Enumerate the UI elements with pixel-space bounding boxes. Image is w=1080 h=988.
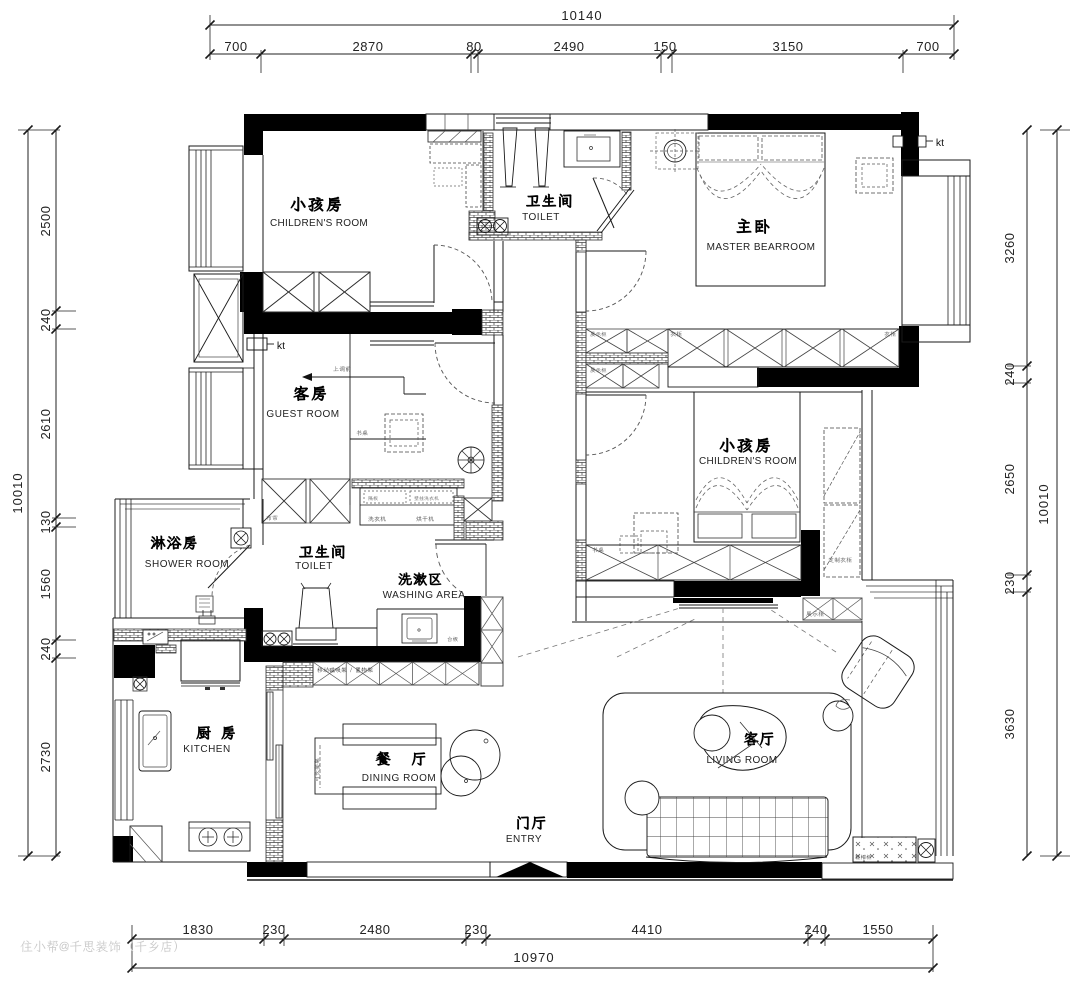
svg-text:kt: kt	[277, 340, 285, 352]
svg-text:KITCHEN: KITCHEN	[183, 744, 230, 755]
svg-text:230: 230	[262, 922, 285, 937]
svg-text:2500: 2500	[38, 206, 53, 237]
svg-text:230: 230	[1002, 571, 1017, 594]
svg-text:2650: 2650	[1002, 464, 1017, 495]
svg-text:150: 150	[653, 39, 676, 54]
svg-text:CHILDREN'S ROOM: CHILDREN'S ROOM	[270, 218, 368, 229]
svg-text:3260: 3260	[1002, 233, 1017, 264]
svg-text:240: 240	[804, 922, 827, 937]
svg-text:240: 240	[38, 637, 53, 660]
svg-text:3150: 3150	[773, 39, 804, 54]
svg-text:LIVING ROOM: LIVING ROOM	[706, 755, 777, 766]
svg-text:700: 700	[224, 39, 247, 54]
svg-text:240: 240	[1002, 362, 1017, 385]
svg-text:2730: 2730	[38, 742, 53, 773]
svg-text:GUEST ROOM: GUEST ROOM	[266, 409, 339, 420]
svg-text:2870: 2870	[353, 39, 384, 54]
svg-text:230: 230	[464, 922, 487, 937]
svg-text:CHILDREN'S ROOM: CHILDREN'S ROOM	[699, 456, 797, 467]
svg-text:130: 130	[38, 510, 53, 533]
svg-text:MASTER BEARROOM: MASTER BEARROOM	[707, 242, 816, 253]
svg-text:TOILET: TOILET	[522, 212, 560, 223]
svg-text:80: 80	[466, 39, 481, 54]
svg-text:3630: 3630	[1002, 709, 1017, 740]
svg-text:1830: 1830	[183, 922, 214, 937]
svg-text:10970: 10970	[513, 950, 554, 965]
svg-text:10010: 10010	[10, 472, 25, 513]
svg-text:kt: kt	[936, 137, 944, 149]
svg-text:DINING ROOM: DINING ROOM	[362, 773, 436, 784]
svg-text:WASHING AREA: WASHING AREA	[383, 590, 466, 601]
svg-text:10010: 10010	[1036, 483, 1051, 524]
svg-text:2480: 2480	[360, 922, 391, 937]
svg-text:10140: 10140	[561, 8, 602, 23]
svg-text:SHOWER ROOM: SHOWER ROOM	[145, 559, 229, 570]
svg-text:4410: 4410	[632, 922, 663, 937]
svg-text:2610: 2610	[38, 409, 53, 440]
svg-text:TOILET: TOILET	[295, 561, 333, 572]
svg-text:ENTRY: ENTRY	[506, 834, 542, 845]
svg-text:2490: 2490	[554, 39, 585, 54]
svg-text:240: 240	[38, 308, 53, 331]
svg-text:700: 700	[916, 39, 939, 54]
svg-text:1550: 1550	[863, 922, 894, 937]
svg-text:1560: 1560	[38, 569, 53, 600]
